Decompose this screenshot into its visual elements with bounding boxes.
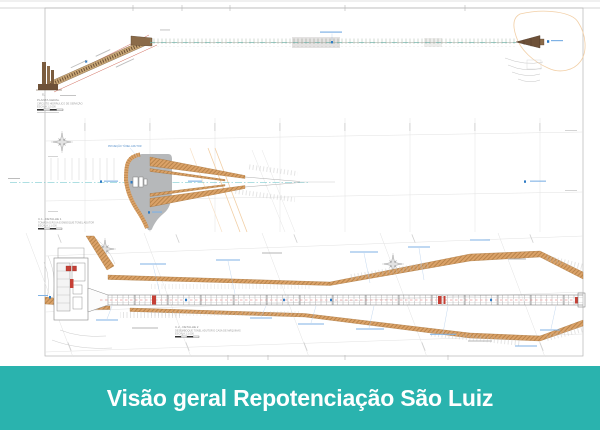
banner-title: Visão geral Repotenciação São Luiz (107, 385, 493, 412)
gate-red (438, 296, 442, 304)
tunnel-portal-block (131, 36, 152, 46)
title-block-detail2: C.2 - DETALHE 2 DESEMBOQUE TÚNEL ADUTOR … (175, 325, 241, 338)
compass-rose-icon (51, 131, 73, 153)
marker (331, 41, 333, 43)
scale-bar (37, 109, 63, 111)
slope-ticks (235, 189, 295, 202)
view-longitudinal-section: EL. (36, 11, 585, 96)
approach-channel-embankments (150, 157, 335, 207)
annotation-stub (551, 40, 563, 41)
tick-fence (46, 158, 116, 184)
screenshot-root: EL. PLANTA GERAL CIRCUITO HIDRÁULICO DE … (0, 0, 600, 430)
view-title: PLANTA GERAL (37, 98, 60, 102)
gate-red (444, 296, 446, 304)
gate-red (152, 296, 156, 305)
annotation-stub (8, 178, 20, 179)
view-scale: ESCALA 1:2.000 (37, 106, 56, 109)
intake-tower (36, 62, 62, 90)
elevation-label: EL. (42, 94, 46, 97)
water-level-marker (547, 40, 549, 43)
crane-block-red (66, 266, 71, 271)
title-block-detail1: C.1 - DETALHE 1 TOMADA D'ÁGUA E EMBOQUE … (38, 217, 94, 230)
view-title: C.1 - DETALHE 1 (38, 217, 62, 221)
slope-contours (505, 58, 543, 82)
slope-ticks (248, 164, 298, 176)
view-title: C.2 - DETALHE 2 (175, 325, 199, 329)
technical-drawing: EL. PLANTA GERAL CIRCUITO HIDRÁULICO DE … (0, 0, 600, 366)
scale-bar (38, 228, 62, 230)
view-plan-tailrace (26, 233, 585, 357)
view-scale: ESCALA 1:1.000 (38, 225, 57, 228)
scale-numbers-stub (37, 112, 59, 113)
unit-block-red (70, 279, 74, 288)
outlet-cone (516, 36, 544, 49)
view-plan-intake: PROJEÇÃO TÚNEL ADUTOR (8, 118, 583, 232)
caption-banner: Visão geral Repotenciação São Luiz (0, 366, 600, 430)
gate-red (575, 297, 578, 304)
tailrace-channel (100, 293, 585, 307)
tailrace-embankments (45, 236, 583, 341)
scale-bar (175, 336, 199, 338)
tunnel-projection-label: PROJEÇÃO TÚNEL ADUTOR (108, 145, 142, 148)
title-block-plan-general: PLANTA GERAL CIRCUITO HIDRÁULICO DE GERA… (37, 98, 83, 113)
crane-block-red (73, 266, 77, 271)
view-scale: ESCALA 1:1.000 (175, 333, 194, 336)
drawing-sheet: EL. PLANTA GERAL CIRCUITO HIDRÁULICO DE … (0, 0, 600, 366)
annotation-stub (320, 32, 342, 33)
